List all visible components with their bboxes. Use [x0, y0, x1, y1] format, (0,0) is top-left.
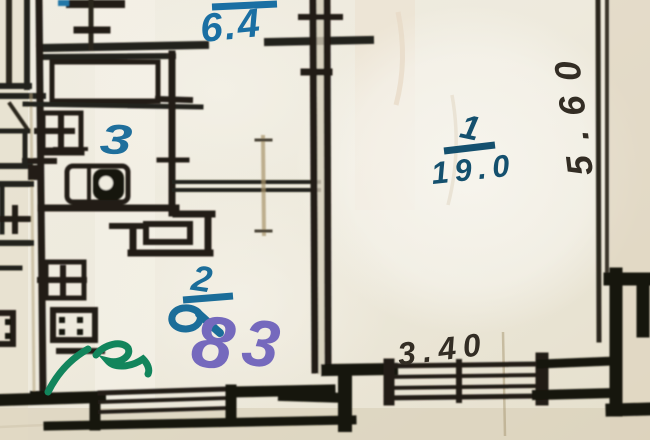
svg-text:6.4: 6.4 [198, 1, 264, 51]
svg-text:3: 3 [98, 115, 134, 164]
